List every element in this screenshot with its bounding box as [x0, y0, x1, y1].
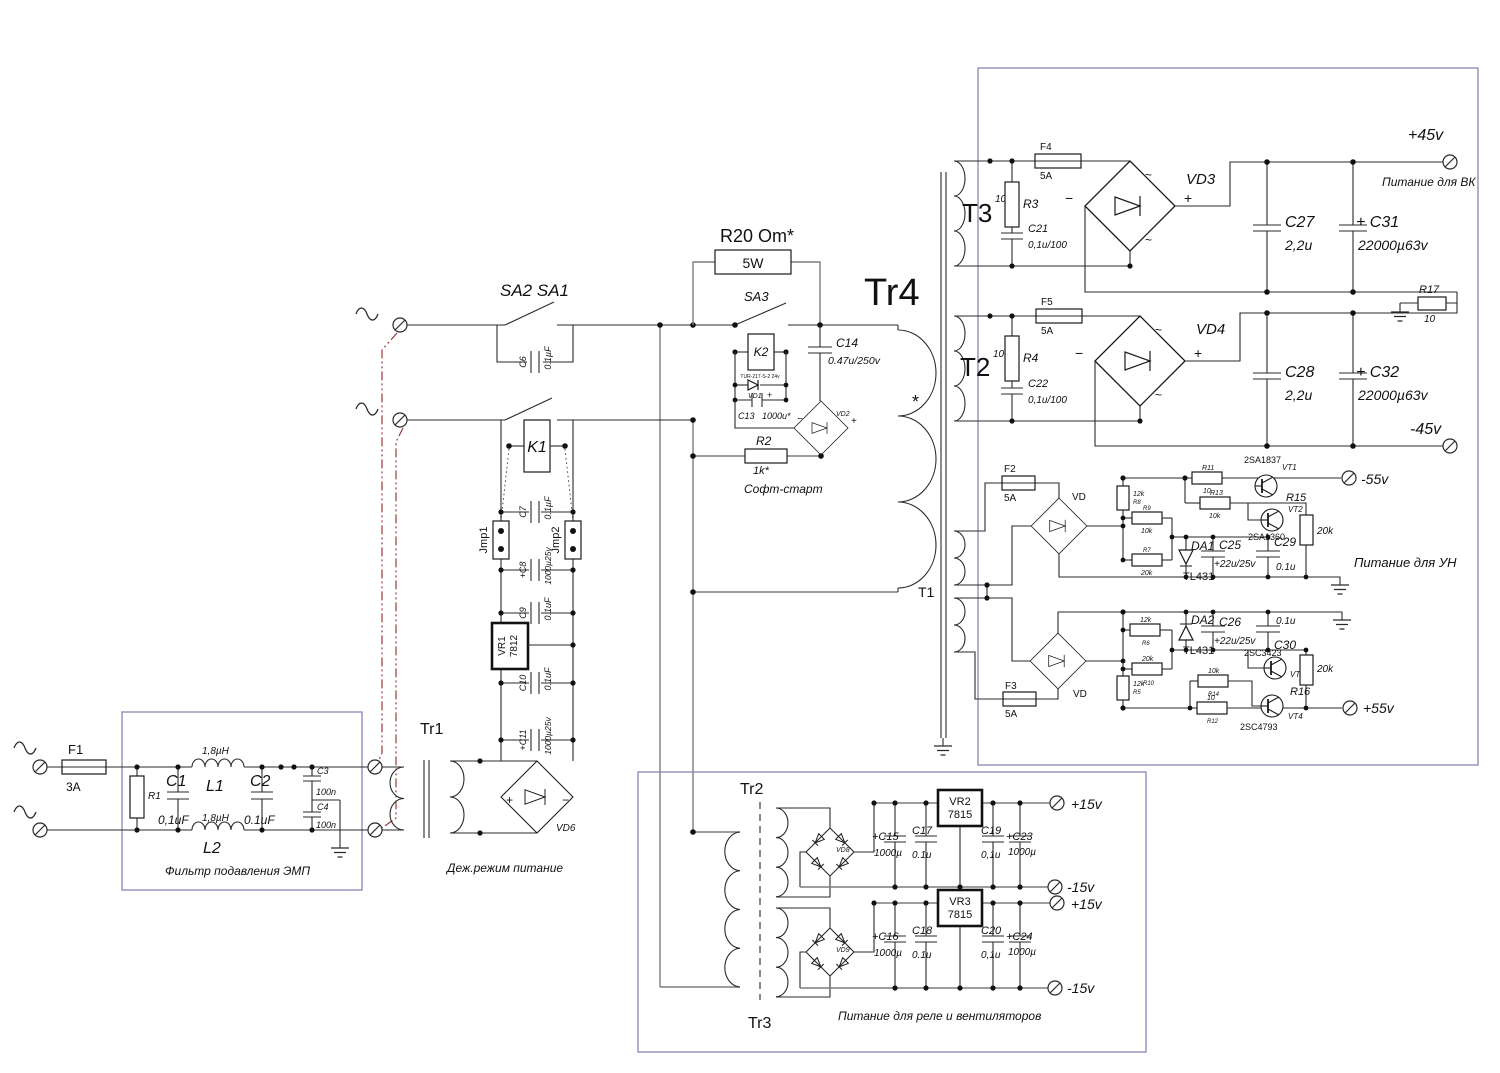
cap-c19-value: 0,1u: [981, 850, 1001, 861]
output-p15a-label: +15v: [1071, 796, 1103, 812]
resistor-r5-label: R5: [1133, 690, 1141, 696]
fuse-f4-label: F4: [1040, 142, 1052, 153]
resistor-r4-label: R4: [1023, 351, 1039, 365]
fuse-f4-value: 5A: [1040, 171, 1053, 182]
inductor-l1: [192, 759, 244, 767]
standby-supply-section: K1 C7 0.1µF Jmp1 Jmp2 +C8 1000µ25v C9 0.…: [382, 420, 581, 875]
t3-label: T3: [962, 198, 992, 228]
transistor-vt2: [1261, 509, 1283, 531]
resistor-r1-label: R1: [148, 791, 161, 802]
regulator-vr2-label: VR2: [949, 796, 970, 808]
ac-input-terminal-2: [33, 823, 47, 837]
power-supply-schematic: F1 3A R1 C1 0,1uF 1,8µH L1 1,8µH L2 C2 0…: [0, 0, 1500, 1073]
resistor-r15: [1300, 515, 1313, 545]
cap-c14-label: C14: [836, 336, 858, 350]
fuse-f5-value: 5A: [1041, 326, 1054, 337]
resistor-r17-label: R17: [1419, 284, 1440, 296]
transistor-vt1-label: VT1: [1282, 463, 1297, 472]
tr3-label: Tr3: [748, 1015, 772, 1032]
bridge-vd2-label: VD2: [836, 411, 850, 418]
inductor-l1-value: 1,8µH: [202, 746, 230, 757]
ground-icon: [1331, 585, 1349, 594]
output-p45-label: +45v: [1408, 127, 1444, 144]
schematic-page: F1 3A R1 C1 0,1uF 1,8µH L1 1,8µH L2 C2 0…: [0, 0, 1500, 1073]
output-n15b-label: -15v: [1067, 980, 1095, 996]
t1-winding-a: [954, 531, 965, 585]
tl431-da2-label: DA2: [1191, 613, 1215, 627]
tilde-sign: ~: [1145, 233, 1152, 247]
transistor-vt1-type: 2SA1837: [1244, 455, 1281, 465]
cap-c8-value: 1000µ25v: [543, 546, 553, 584]
bridge-vd6-label: VD6: [556, 823, 576, 834]
vk-supply-caption: Питание для ВК: [1382, 175, 1476, 189]
cap-c21-label: C21: [1028, 223, 1048, 235]
t1-winding-b: [954, 598, 965, 652]
minus-sign: −: [797, 414, 803, 425]
resistor-r16-label: R16: [1290, 686, 1311, 698]
bridge-vd8-label: VD8: [836, 847, 850, 854]
filter-caption: Фильтр подавления ЭМП: [165, 864, 310, 878]
ac-symbol-icon: [356, 308, 378, 320]
cap-c9-value: 0.1uF: [543, 597, 553, 621]
fuse-f2-label: F2: [1004, 464, 1016, 475]
cap-c17-label: C17: [912, 825, 933, 837]
minus-sign: −: [1065, 190, 1073, 206]
transistor-vt4-label: VT4: [1288, 712, 1303, 721]
tr2-label: Tr2: [740, 781, 764, 798]
regulator-vr3-value: 7815: [948, 909, 972, 921]
cap-c13-value: 1000u*: [762, 411, 791, 421]
cap-c19-label: C19: [981, 825, 1001, 837]
tl431-da2: [1179, 626, 1193, 640]
cap-c16-value: 1000µ: [874, 948, 902, 959]
cap-c8-label: +C8: [518, 562, 528, 579]
bridge-vd-lower: [1030, 633, 1086, 689]
cap-c26-label: C26: [1219, 615, 1241, 629]
resistor-r9-label: R9: [1143, 506, 1151, 512]
bridge-vd-upper-label: VD: [1072, 492, 1086, 503]
relay-k1-label: K1: [527, 439, 547, 456]
resistor-r13: [1200, 497, 1230, 509]
cap-c13-label: C13: [738, 411, 755, 421]
tr4-transformer: Tr4 * T1: [864, 161, 965, 755]
ac-symbol-icon: [14, 806, 36, 818]
resistor-r7-label: R7: [1143, 548, 1151, 554]
transistor-vt4: [1261, 695, 1283, 717]
tr4-label: Tr4: [864, 272, 920, 314]
ac-symbol-icon: [14, 742, 36, 754]
resistor-r8-value: 12k: [1133, 491, 1145, 498]
cap-c30-value: 0.1u: [1276, 616, 1296, 627]
resistor-r11: [1192, 472, 1222, 484]
output-terminal-n15-b: [1048, 981, 1062, 995]
aux-caption: Питание для реле и вентиляторов: [838, 1009, 1041, 1023]
inductor-l1-label: L1: [206, 778, 224, 795]
cap-c7-value: 0.1µF: [543, 496, 553, 520]
resistor-r6-label: R6: [1142, 641, 1150, 647]
cap-c29-value: 0.1u: [1276, 562, 1296, 573]
tilde-sign: ~: [1155, 388, 1162, 402]
t1-label: T1: [918, 584, 935, 600]
transistor-vt3-type: 2SC3423: [1244, 648, 1282, 658]
output-terminal-p15-a: [1050, 796, 1064, 810]
minus-sign: −: [1075, 345, 1083, 361]
jumper-jmp1-label: Jmp1: [478, 527, 490, 554]
relay-k2-part: TUR-217-S-2 24v: [740, 374, 780, 380]
plus-sign: +: [851, 416, 857, 427]
fuse-f1-value: 3A: [66, 780, 81, 794]
cap-c11-label: +C11: [518, 729, 528, 750]
output-terminal-p15-b: [1050, 896, 1064, 910]
switch-blade: [505, 398, 552, 420]
cap-c1-label: C1: [166, 773, 186, 790]
tr3-secondary-winding: [776, 908, 788, 997]
diode-vd1: [748, 380, 758, 390]
resistor-r10-label: R10: [1143, 681, 1155, 687]
cap-c6-label: C6: [518, 356, 528, 368]
cap-c18-label: C18: [912, 925, 933, 937]
resistor-r17: [1418, 297, 1446, 310]
cap-c4-value: 100n: [316, 820, 336, 830]
cap-c28-value: 2,2u: [1284, 387, 1312, 403]
cap-c27-label: C27: [1285, 214, 1315, 231]
cap-c6-value: 0.1µF: [543, 346, 553, 370]
tilde-sign: ~: [1155, 323, 1162, 337]
resistor-r3: [1005, 182, 1019, 227]
ac-symbol-icon: [356, 403, 378, 415]
output-terminal-n15-a: [1048, 880, 1062, 894]
cap-c2-label: C2: [250, 773, 271, 790]
regulator-vr1-label: VR1: [497, 636, 508, 656]
output-p15b-label: +15v: [1071, 896, 1103, 912]
resistor-r15-value: 20k: [1316, 526, 1334, 537]
transistor-vt2-label: VT2: [1288, 505, 1303, 514]
switch-sa3-label: SA3: [744, 289, 769, 304]
regulator-vr2-value: 7815: [948, 809, 972, 821]
resistor-r13-value: 10k: [1209, 513, 1221, 520]
cap-c25-label: C25: [1219, 538, 1241, 552]
output-terminal-n45: [1443, 439, 1457, 453]
output-n45-label: -45v: [1410, 421, 1442, 438]
tr2-secondary-winding: [776, 808, 788, 897]
cap-c20-value: 0,1u: [981, 950, 1001, 961]
filter-output-terminal-1: [368, 760, 382, 774]
resistor-r9-value: 10k: [1141, 528, 1153, 535]
cap-c23-value: 1000µ: [1008, 847, 1036, 858]
cap-c4-label: C4: [317, 802, 329, 812]
cap-c27-value: 2,2u: [1284, 237, 1312, 253]
filter-output-terminal-2: [368, 823, 382, 837]
resistor-r13-label: R13: [1210, 490, 1223, 497]
resistor-r12-label: R12: [1207, 719, 1219, 725]
resistor-r15-label: R15: [1286, 492, 1307, 504]
mains-terminal-2: [393, 413, 407, 427]
bridge-vd4: [1095, 316, 1185, 406]
ac-input-terminal-1: [33, 760, 47, 774]
bridge-vd-upper: [1031, 498, 1087, 554]
regulator-vr1-value: 7812: [509, 634, 520, 657]
cap-c20-label: C20: [981, 925, 1002, 937]
cap-c32-label: + C32: [1356, 364, 1399, 381]
emi-filter-section: F1 3A R1 C1 0,1uF 1,8µH L1 1,8µH L2 C2 0…: [14, 712, 382, 890]
output-n15a-label: -15v: [1067, 879, 1095, 895]
cap-c7-label: C7: [518, 505, 528, 517]
regulator-vr3-label: VR3: [949, 896, 970, 908]
diode-vd1-label: VD1: [748, 393, 762, 400]
resistor-r17-value: 10: [1424, 314, 1436, 325]
transistor-vt1: [1255, 475, 1277, 497]
cap-c2-value: 0.1uF: [244, 813, 275, 827]
resistor-r10-value: 20k: [1141, 656, 1154, 663]
inductor-l2-value: 1,8µH: [202, 813, 230, 824]
tr1-label: Tr1: [420, 721, 444, 738]
bridge-vd2: [794, 401, 848, 455]
resistor-r7-value: 20k: [1140, 570, 1153, 577]
cap-c29-label: C29: [1274, 535, 1296, 549]
resistor-r8-label: R8: [1133, 500, 1141, 506]
resistor-r16: [1300, 655, 1313, 685]
t2-turns: 10: [993, 349, 1005, 360]
output-p55-label: +55v: [1363, 700, 1395, 716]
resistor-r6-value: 12k: [1140, 617, 1152, 624]
fuse-f1-label: F1: [68, 742, 83, 757]
mains-terminal-1: [393, 318, 407, 332]
cap-c32-value: 22000µ63v: [1357, 387, 1429, 403]
cap-c24-label: +C24: [1006, 931, 1033, 943]
bridge-vd9: VD9: [776, 903, 874, 997]
resistor-r12: [1197, 702, 1227, 714]
cap-c10-label: C10: [518, 675, 528, 692]
tr1-secondary-winding: [450, 761, 464, 833]
mains-link-lines: [378, 333, 403, 828]
cap-c15-label: +C15: [872, 831, 899, 843]
inductor-l2-label: L2: [203, 840, 221, 857]
cap-c31-value: 22000µ63v: [1357, 237, 1429, 253]
ground-icon: [934, 746, 952, 755]
plus-sign: +: [767, 390, 772, 400]
winding-phase-star: *: [912, 392, 919, 412]
output-n55-label: -55v: [1361, 471, 1389, 487]
cap-c31-label: + C31: [1356, 214, 1399, 231]
resistor-r8: [1117, 486, 1129, 510]
resistor-r9: [1132, 512, 1162, 524]
bridge-vd9-label: VD9: [836, 947, 850, 954]
bridge-vd-lower-label: VD: [1073, 689, 1087, 700]
cap-c26-value: +22u/25v: [1214, 636, 1256, 647]
plus-sign: +: [1184, 190, 1192, 206]
cap-c23-label: +C23: [1006, 831, 1033, 843]
cap-c24-value: 1000µ: [1008, 947, 1036, 958]
switch-sa2-sa1-label: SA2 SA1: [500, 281, 569, 300]
fuse-f5-label: F5: [1041, 297, 1053, 308]
resistor-r10: [1132, 663, 1162, 675]
fuse-f3-label: F3: [1005, 681, 1017, 692]
resistor-r7: [1132, 554, 1162, 566]
cap-c17-value: 0.1u: [912, 850, 932, 861]
soft-start-caption: Софт-старт: [744, 482, 823, 496]
jumper-jmp2: [565, 521, 581, 559]
plus-sign: +: [506, 793, 513, 807]
bridge-vd4-label: VD4: [1196, 321, 1225, 338]
cap-c18-value: 0.1u: [912, 950, 932, 961]
resistor-r2-value: 1k*: [753, 465, 770, 477]
jumper-jmp1: [493, 521, 509, 559]
aux-supply-section: Tr2 Tr3 VD8 VD9 VR2 7815 +C15 1000µ C17 …: [638, 772, 1146, 1052]
cap-c10-value: 0.1uF: [543, 667, 553, 691]
output-terminal-p45: [1443, 155, 1457, 169]
t2-label: T2: [960, 352, 990, 382]
output-terminal-n55: [1342, 471, 1356, 485]
transistor-vt4-type: 2SC4793: [1240, 722, 1278, 732]
fuse-f2-value: 5A: [1004, 493, 1017, 504]
resistor-r11-label: R11: [1202, 465, 1214, 472]
resistor-r14-value: 10k: [1208, 668, 1220, 675]
cap-c9-label: C9: [518, 607, 528, 619]
cap-c16-label: +C16: [872, 931, 899, 943]
resistor-r20-watt: 5W: [743, 255, 765, 271]
resistor-r1: [130, 776, 144, 818]
switch-blade: [505, 302, 554, 325]
resistor-r2-label: R2: [756, 434, 772, 448]
cap-c11-value: 1000µ25v: [543, 716, 553, 754]
fuse-f3-value: 5A: [1005, 709, 1018, 720]
tilde-sign: ~: [1145, 168, 1152, 182]
resistor-r12-value: 10: [1207, 695, 1215, 702]
cap-c22-value: 0,1u/100: [1028, 395, 1067, 406]
cap-c28-label: C28: [1285, 364, 1314, 381]
resistor-r3-label: R3: [1023, 197, 1039, 211]
cap-c21-value: 0,1u/100: [1028, 240, 1067, 251]
ground-icon: [331, 848, 349, 857]
minus-sign: −: [562, 793, 569, 807]
mains-switch-section: SA2 SA1 C6 0.1µF: [356, 281, 735, 427]
transistor-vt3: [1264, 657, 1286, 679]
resistor-r14: [1198, 675, 1228, 687]
cap-c25-value: +22u/25v: [1214, 559, 1256, 570]
resistor-r6: [1130, 624, 1160, 636]
un-supply-section: F2 5A VD 12k R8 R9 10k R7 20k R11 10 -55…: [954, 455, 1457, 732]
output-terminal-p55: [1343, 701, 1357, 715]
cap-c22-label: C22: [1028, 378, 1048, 390]
cap-c1-value: 0,1uF: [158, 813, 189, 827]
un-supply-caption: Питание для УН: [1354, 555, 1457, 570]
tr4-primary-winding: [898, 330, 936, 588]
cap-c3-value: 100n: [316, 787, 336, 797]
standby-caption: Деж.режим питание: [445, 861, 563, 875]
cap-c14-value: 0.47u/250v: [828, 355, 881, 367]
cap-c15-value: 1000µ: [874, 848, 902, 859]
resistor-r5: [1117, 676, 1129, 700]
tr2-primary-winding: [725, 832, 740, 987]
relay-k2-label: K2: [754, 345, 769, 359]
resistor-r2: [745, 449, 787, 463]
bridge-vd8: VD8: [776, 803, 874, 897]
ground-icon: [1333, 620, 1351, 629]
plus-sign: +: [1194, 345, 1202, 361]
bridge-vd3: [1085, 161, 1175, 251]
resistor-r4: [1005, 336, 1019, 381]
resistor-r20-label: R20 Om*: [720, 226, 794, 246]
switch-sa3-blade: [735, 303, 786, 325]
bridge-vd3-label: VD3: [1186, 171, 1216, 188]
resistor-r16-value: 20k: [1316, 664, 1334, 675]
